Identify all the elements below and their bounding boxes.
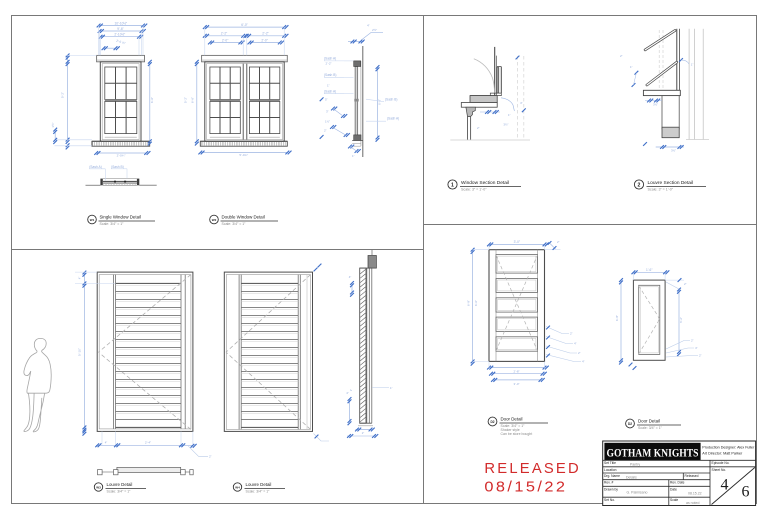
svg-text:1”: 1”: [352, 154, 355, 158]
svg-text:4”: 4”: [695, 346, 698, 350]
svg-text:1½”: 1½”: [51, 122, 55, 127]
svg-text:W2: W2: [212, 218, 217, 222]
svg-text:Episode No.: Episode No.: [712, 461, 730, 465]
svg-text:08/15/22: 08/15/22: [484, 480, 567, 496]
svg-text:Released: Released: [685, 474, 699, 478]
svg-text:Door Detail: Door Detail: [638, 419, 660, 424]
svg-text:2”: 2”: [684, 282, 687, 286]
svg-text:2”: 2”: [699, 354, 702, 358]
svg-text:RELEASED: RELEASED: [484, 461, 581, 477]
svg-text:(Sash B): (Sash B): [111, 165, 124, 169]
svg-text:6’-6”: 6’-6”: [378, 99, 382, 105]
svg-text:(Sash B): (Sash B): [385, 98, 397, 102]
svg-text:10’-10½”: 10’-10½”: [115, 21, 128, 25]
svg-text:Scale: 3/4” = 1”: Scale: 3/4” = 1”: [246, 489, 271, 493]
svg-text:4”: 4”: [520, 101, 523, 105]
svg-text:2’-2”: 2’-2”: [326, 62, 332, 66]
svg-text:Location: Location: [604, 468, 617, 472]
svg-text:6’-6”: 6’-6”: [474, 300, 478, 306]
svg-text:2”: 2”: [578, 351, 581, 355]
svg-text:D2: D2: [490, 420, 494, 424]
svg-text:D2: D2: [628, 422, 632, 426]
svg-text:5”: 5”: [325, 98, 328, 102]
svg-text:6’-8”: 6’-8”: [467, 300, 471, 306]
svg-text:Window Section Detail: Window Section Detail: [461, 180, 509, 186]
svg-text:5’-0¾”: 5’-0¾”: [239, 153, 248, 157]
svg-text:4”: 4”: [349, 275, 352, 279]
svg-text:2’-2”: 2’-2”: [221, 32, 227, 36]
svg-text:3”: 3”: [326, 110, 329, 114]
svg-text:5’-2”: 5’-2”: [61, 92, 65, 98]
svg-text:2’-0¾”: 2’-0¾”: [117, 154, 126, 158]
svg-text:GOTHAM KNIGHTS: GOTHAM KNIGHTS: [607, 446, 699, 460]
svg-text:Double Window Detail: Double Window Detail: [222, 215, 265, 220]
svg-text:2’-4”: 2’-4”: [145, 441, 151, 445]
svg-text:Pantry: Pantry: [630, 463, 640, 467]
svg-text:2”: 2”: [620, 54, 623, 58]
svg-text:2”: 2”: [362, 431, 365, 435]
svg-text:1”: 1”: [349, 389, 353, 391]
svg-text:Door Detail: Door Detail: [501, 417, 523, 422]
svg-text:Rev. #: Rev. #: [604, 481, 613, 485]
svg-text:6’-2”: 6’-2”: [679, 317, 683, 323]
svg-text:5’-2”: 5’-2”: [184, 97, 188, 103]
svg-text:1’-6”: 1’-6”: [646, 268, 652, 272]
svg-text:4”: 4”: [367, 24, 370, 28]
svg-text:6’-6”: 6’-6”: [191, 97, 195, 103]
svg-text:Louvre Detail: Louvre Detail: [246, 482, 272, 487]
svg-text:3½”: 3½”: [671, 149, 676, 153]
svg-text:2½”: 2½”: [372, 28, 377, 32]
svg-text:W3: W3: [96, 486, 101, 490]
svg-text:6’-0”: 6’-0”: [241, 23, 247, 27]
svg-text:3’-0”: 3’-0”: [513, 382, 519, 386]
svg-text:1: 1: [451, 182, 454, 188]
svg-text:Drg. Name: Drg. Name: [604, 474, 620, 478]
svg-text:1”: 1”: [691, 63, 694, 67]
svg-text:Scale: 3” = 1’-0”: Scale: 3” = 1’-0”: [648, 188, 674, 192]
svg-text:2”: 2”: [691, 339, 694, 343]
svg-text:2: 2: [638, 182, 641, 188]
svg-text:Date: Date: [670, 487, 677, 491]
svg-text:5’-10”: 5’-10”: [78, 348, 82, 356]
svg-text:1”: 1”: [327, 84, 330, 88]
svg-text:6’-8”: 6’-8”: [615, 315, 619, 321]
svg-text:08.15.22: 08.15.22: [688, 492, 702, 496]
svg-text:2’-0”: 2’-0”: [261, 38, 267, 42]
svg-text:as noted: as noted: [686, 501, 699, 505]
svg-text:Production Designer: Alex Ful: Production Designer: Alex Fuller: [702, 446, 755, 450]
svg-text:Details: Details: [626, 476, 637, 480]
svg-text:(Sash B): (Sash B): [324, 73, 336, 77]
svg-text:1½”: 1½”: [325, 120, 330, 124]
svg-text:Scale: 3/4” = 1”: Scale: 3/4” = 1”: [222, 222, 247, 226]
svg-text:Scale: 3/4” = 1”: Scale: 3/4” = 1”: [107, 489, 132, 493]
svg-text:Scale: 3/4” = 1”: Scale: 3/4” = 1”: [100, 222, 125, 226]
svg-text:2”: 2”: [209, 455, 212, 459]
svg-text:Can be store bought: Can be store bought: [501, 432, 533, 436]
svg-text:2”: 2”: [324, 129, 327, 133]
svg-text:G. Palmisano: G. Palmisano: [627, 491, 648, 495]
svg-text:Set Title: Set Title: [604, 461, 616, 465]
svg-text:Sheet No.: Sheet No.: [712, 468, 727, 472]
svg-text:4”: 4”: [78, 277, 82, 280]
svg-text:2”: 2”: [557, 240, 560, 244]
svg-text:Scale: 3” = 1’-0”: Scale: 3” = 1’-0”: [461, 188, 487, 192]
svg-text:4: 4: [721, 477, 729, 494]
svg-text:1”: 1”: [630, 65, 633, 69]
svg-text:1”: 1”: [508, 113, 511, 117]
svg-text:Louvre Section Detail: Louvre Section Detail: [648, 180, 694, 186]
svg-text:3½”: 3½”: [653, 103, 658, 107]
svg-text:9’-6”: 9’-6”: [117, 27, 123, 31]
svg-text:3½”: 3½”: [503, 123, 508, 127]
svg-text:2’-10½”: 2’-10½”: [114, 33, 125, 37]
svg-text:Louvre Detail: Louvre Detail: [107, 482, 133, 487]
svg-text:(Sash A): (Sash A): [324, 57, 336, 61]
svg-text:Set No.: Set No.: [604, 498, 615, 502]
svg-text:2’-0”: 2’-0”: [222, 38, 228, 42]
svg-text:6’-6”: 6’-6”: [150, 97, 154, 103]
svg-text:1”: 1”: [390, 386, 393, 390]
svg-text:4”: 4”: [582, 360, 585, 364]
svg-text:(Sash A): (Sash A): [387, 117, 399, 121]
svg-text:2’-2”: 2’-2”: [262, 32, 268, 36]
svg-text:Scale: 3/4” = 1”: Scale: 3/4” = 1”: [638, 426, 663, 430]
svg-text:6: 6: [742, 484, 750, 501]
svg-text:2”: 2”: [477, 126, 480, 130]
svg-text:(Sash A): (Sash A): [324, 90, 336, 94]
svg-text:2’-8”: 2’-8”: [513, 370, 519, 374]
svg-text:4”: 4”: [346, 391, 349, 395]
svg-text:W1: W1: [90, 218, 95, 222]
svg-text:Rev. Date: Rev. Date: [670, 481, 685, 485]
svg-text:4”: 4”: [105, 441, 108, 445]
svg-text:(Sash A): (Sash A): [89, 165, 102, 169]
svg-text:Scale: Scale: [670, 498, 678, 502]
svg-text:W4: W4: [235, 486, 240, 490]
svg-text:Art Director: Matt Parker: Art Director: Matt Parker: [702, 452, 743, 456]
svg-text:3’-0”: 3’-0”: [514, 240, 520, 244]
svg-text:Single Window Detail: Single Window Detail: [100, 215, 142, 220]
svg-text:Drawn by: Drawn by: [604, 487, 618, 491]
svg-text:2”: 2”: [570, 332, 573, 336]
svg-text:4”: 4”: [574, 342, 577, 346]
